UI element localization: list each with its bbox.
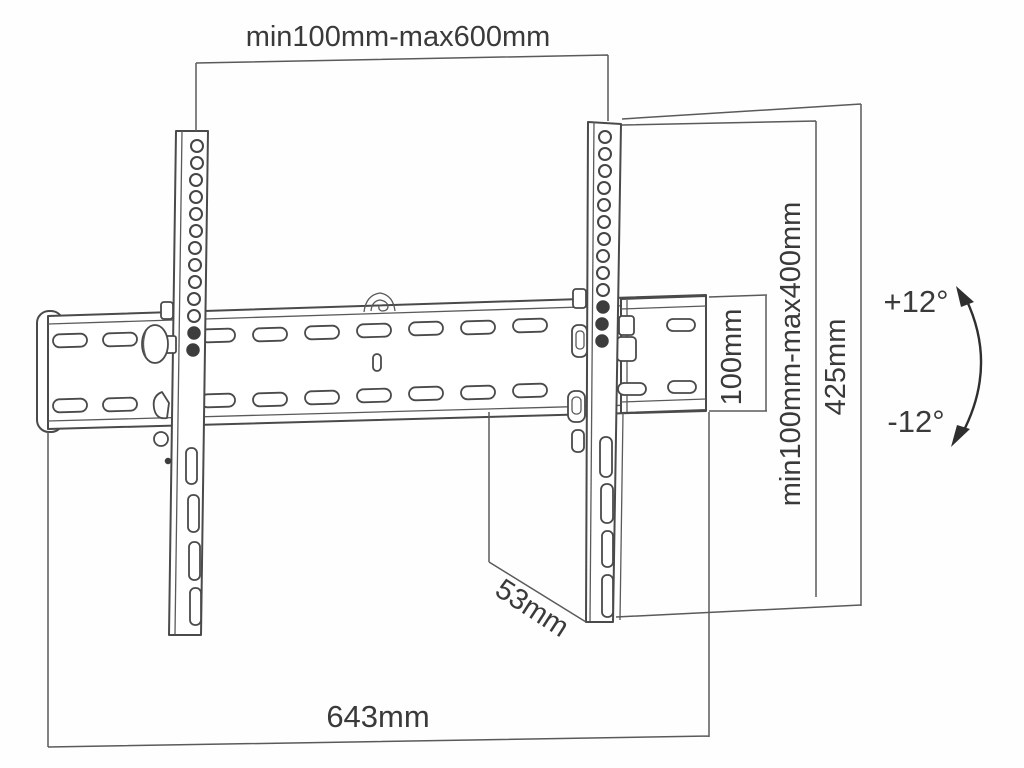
slot <box>461 320 495 334</box>
slot <box>601 484 613 523</box>
tilt-angle-annotation: +12° -12° <box>884 284 982 447</box>
slot <box>409 386 443 400</box>
hole <box>598 216 610 228</box>
right-bracket-side-line <box>620 413 623 620</box>
slot <box>409 321 443 335</box>
hole <box>597 301 609 313</box>
latch-tab <box>572 430 584 452</box>
slot <box>305 390 339 404</box>
hole <box>598 199 610 211</box>
hole <box>190 225 202 237</box>
tilt-knob <box>142 325 168 363</box>
hole <box>597 267 609 279</box>
slot <box>201 393 235 407</box>
tilt-arc <box>962 299 981 434</box>
tv-adapter-plate <box>617 296 706 413</box>
diagram-page: min100mm-max600mm min100mm-max400mm 425m… <box>0 0 1024 768</box>
slot <box>189 542 200 580</box>
latch-hook <box>572 325 587 357</box>
left-latch-pin <box>166 459 171 464</box>
slot <box>305 325 339 339</box>
hole <box>597 250 609 262</box>
slot <box>667 319 695 331</box>
tilt-arrow-up-icon <box>956 286 974 307</box>
hole <box>188 310 200 322</box>
slot <box>600 437 612 477</box>
hole <box>596 335 608 347</box>
dim-label-bracket-height: 425mm <box>820 319 852 416</box>
latch-tab <box>573 289 586 308</box>
slot <box>461 385 495 399</box>
wall-mount-diagram: min100mm-max600mm min100mm-max400mm 425m… <box>0 0 1024 768</box>
hole <box>599 148 611 160</box>
hole <box>189 259 201 271</box>
hole <box>189 276 201 288</box>
hole <box>187 344 199 356</box>
hole <box>599 165 611 177</box>
hole <box>189 242 201 254</box>
left-bracket-tab <box>161 302 173 319</box>
slot <box>190 588 201 625</box>
left-latch-ring <box>154 432 168 446</box>
adapter-latch-lower <box>617 337 636 361</box>
slot <box>103 332 137 346</box>
slot <box>513 318 547 332</box>
keyhole-slot <box>373 354 381 371</box>
dim-label-total-width: 643mm <box>326 699 429 734</box>
tilt-arrow-down-icon <box>951 425 970 447</box>
slot <box>53 398 87 412</box>
hole <box>190 174 202 186</box>
hole <box>598 182 610 194</box>
tilt-down-label: -12° <box>887 404 944 439</box>
latch-hook <box>568 391 585 422</box>
slot <box>186 448 197 484</box>
dimension-top-width: min100mm-max600mm <box>196 21 608 131</box>
slot <box>602 575 613 617</box>
slot <box>357 323 391 337</box>
dim-label-depth: 53mm <box>489 573 574 644</box>
hole <box>598 233 610 245</box>
slot <box>188 495 199 532</box>
slot <box>618 383 646 395</box>
slot <box>602 531 613 567</box>
slot <box>357 388 391 402</box>
slot <box>668 381 696 393</box>
slot <box>513 383 547 397</box>
adapter-latch-upper <box>619 316 634 335</box>
hole <box>190 191 202 203</box>
hole <box>190 208 202 220</box>
hole <box>599 131 611 143</box>
hole <box>597 284 609 296</box>
dimension-lines <box>196 55 608 131</box>
hole <box>188 327 200 339</box>
hole <box>188 293 200 305</box>
dim-label-top-width: min100mm-max600mm <box>246 21 551 53</box>
slot <box>253 392 287 406</box>
dim-label-plate-end-height: 100mm <box>716 309 748 406</box>
hole <box>191 157 203 169</box>
slot <box>253 327 287 341</box>
tilt-up-label: +12° <box>884 284 949 319</box>
slot <box>103 397 137 411</box>
hole <box>191 140 203 152</box>
slot <box>53 333 87 347</box>
dimension-plate-end-height: 100mm <box>709 295 767 411</box>
hole <box>596 318 608 330</box>
dim-label-vesa-height: min100mm-max400mm <box>775 202 807 507</box>
